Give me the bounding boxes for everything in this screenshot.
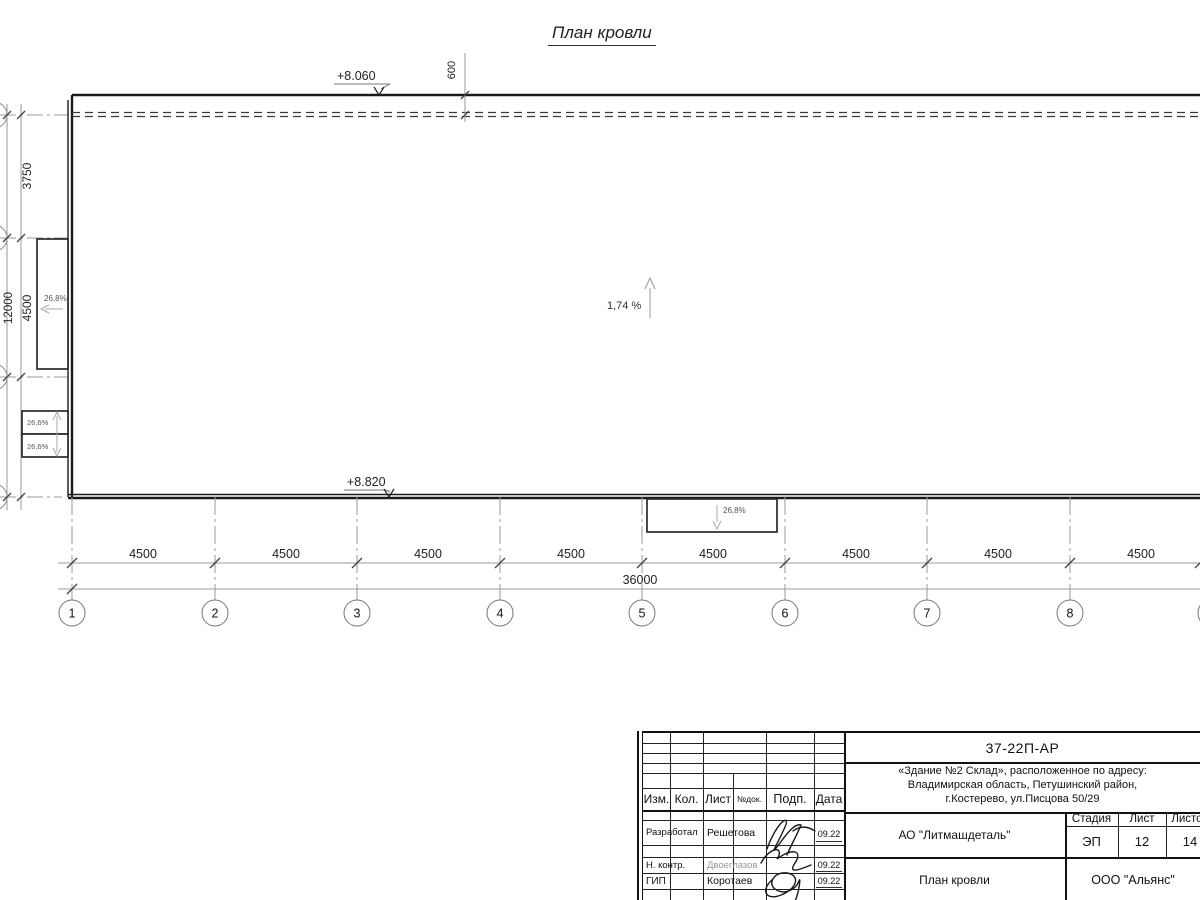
svg-text:4500: 4500 [699,547,727,561]
row-role: Н. контр. [646,857,703,873]
left-small-boxes: 26,6% 26,6% [22,411,68,457]
design-org: ООО "Альянс" [1065,857,1200,900]
bottom-canopy: 26,8% [647,499,777,532]
dim-4500-left: 4500 [20,294,34,321]
sheets-label: Листов [1166,812,1200,826]
svg-text:5: 5 [639,607,646,621]
svg-text:8: 8 [1067,607,1074,621]
titleblock-outer-line [637,731,639,900]
row-role: ГИП [646,873,703,889]
slope-up-arrow-icon [645,278,655,289]
stage-label: Стадия [1065,812,1118,826]
svg-text:1: 1 [69,607,76,621]
doc-number: 37-22П-АР [844,733,1200,762]
dim-12000-total: 12000 [3,292,15,324]
project-address: «Здание №2 Склад», расположенное по адре… [844,764,1200,810]
col-kol: Кол. [670,788,703,810]
address-line: Владимирская область, Петушинский район, [844,778,1200,792]
svg-text:6: 6 [782,607,789,621]
parapet-dashed-lines [72,113,1200,117]
svg-text:4500: 4500 [414,547,442,561]
svg-text:7: 7 [924,607,931,621]
svg-text:3: 3 [354,607,361,621]
svg-text:2: 2 [212,607,219,621]
sheet-value: 12 [1118,826,1166,857]
svg-text:4500: 4500 [557,547,585,561]
building-outline [68,95,1200,498]
box-top-slope-label: 26,6% [27,418,49,427]
svg-text:4500: 4500 [842,547,870,561]
customer-company: АО "Литмашдеталь" [844,812,1065,857]
row-role: Разработал [646,820,703,845]
grid-axis-bubbles: 1 2 3 4 5 6 7 8 [59,599,1200,627]
row-name: Решетова [707,820,765,845]
signature-gip [755,843,825,900]
total-dimension-label: 36000 [623,573,658,587]
elev-bottom-label: +8.820 [347,475,386,489]
tb-line [703,733,704,900]
elevation-bottom: +8.820 [344,475,394,497]
col-data: Дата [814,788,844,810]
box-bottom-slope-label: 26,6% [27,442,49,451]
drawing-name: План кровли [844,857,1065,900]
stage-value: ЭП [1065,826,1118,857]
overall-dimension: 36000 [58,573,1200,594]
main-slope-label: 1,74 % [607,300,641,312]
drawing-sheet: План кровли 3750 4500 [0,0,1200,900]
main-slope-annotation: 1,74 % [607,278,655,318]
sheet-label: Лист [1118,812,1166,826]
col-podp: Подп. [766,788,814,810]
bottom-canopy-slope-label: 26,8% [723,506,746,515]
titleblock: Изм. Кол. Лист №док. Подп. Дата Разработ… [642,731,1200,900]
address-line: г.Костерево, ул.Писцова 50/29 [844,792,1200,806]
elevation-top: +8.060 [334,69,390,95]
bottom-dimension-chain: 4500 4500 4500 4500 4500 4500 4500 4500 [58,547,1200,568]
left-canopy-slope-label: 26,8% [44,294,67,303]
left-dimension-labels: 3750 4500 3750 12000 [3,162,34,453]
dim-600-label: 600 [446,61,458,79]
col-ndok: №док. [733,788,766,810]
sheets-value: 14 [1166,826,1200,857]
dim-3750-top: 3750 [20,162,34,189]
svg-text:4500: 4500 [984,547,1012,561]
parapet-dimension: 600 [446,53,469,122]
elev-top-label: +8.060 [337,69,376,83]
svg-text:4: 4 [497,607,504,621]
col-list: Лист [703,788,733,810]
col-izm: Изм. [643,788,670,810]
roof-plan-canvas: 3750 4500 3750 12000 600 +8.060 [0,0,1200,660]
svg-text:4500: 4500 [1127,547,1155,561]
svg-text:4500: 4500 [272,547,300,561]
svg-text:4500: 4500 [129,547,157,561]
left-canopy: 26,8% [37,239,68,369]
address-line: «Здание №2 Склад», расположенное по адре… [844,764,1200,778]
